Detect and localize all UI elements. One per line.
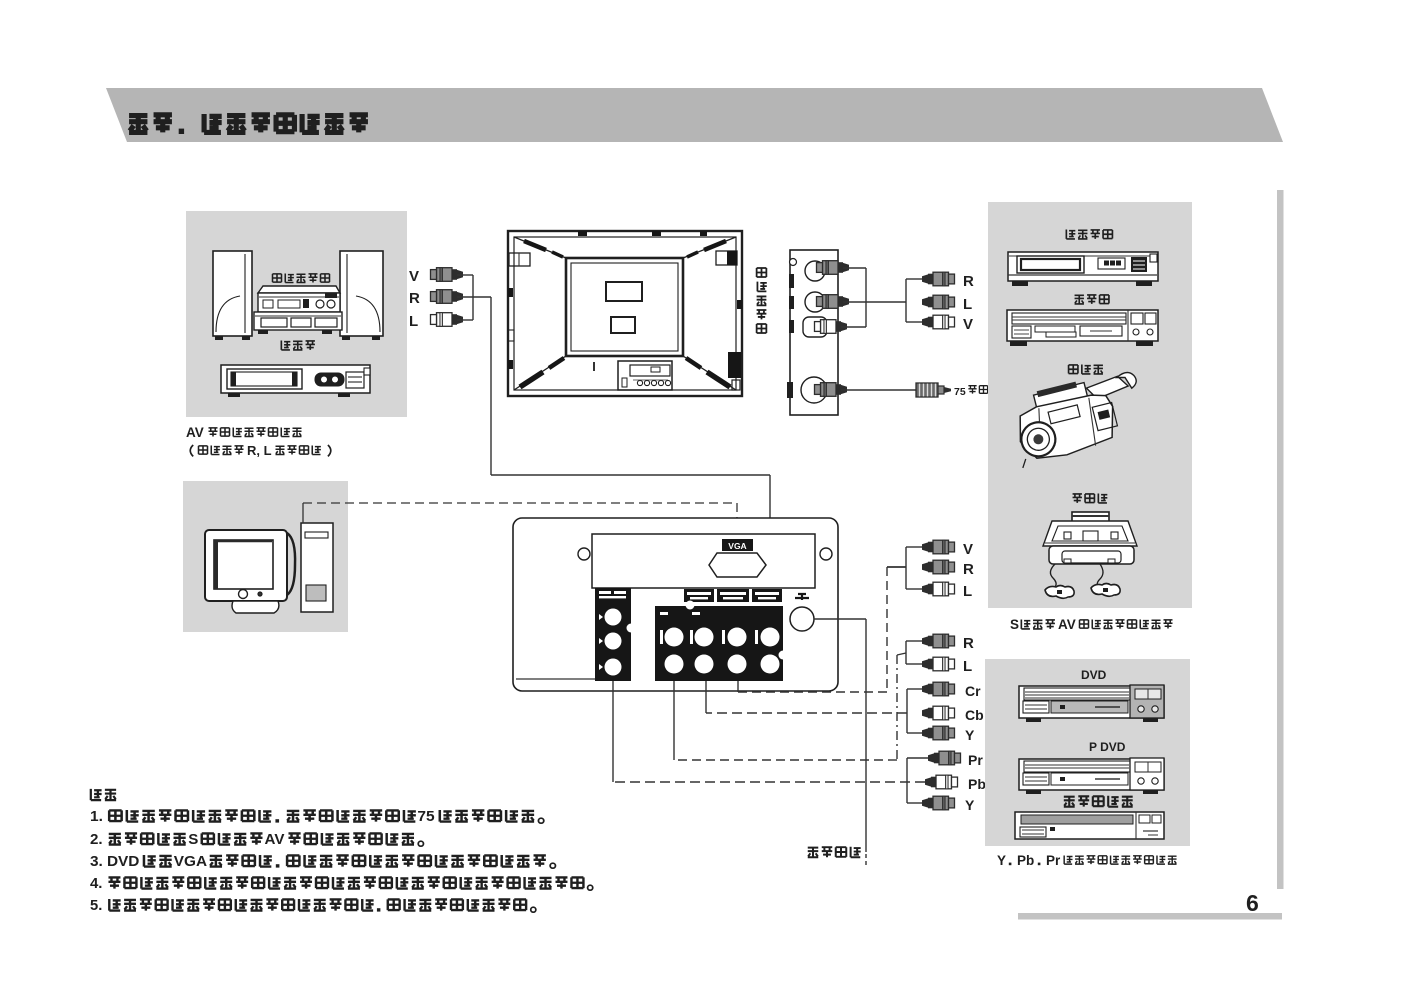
svg-text:Pb: Pb xyxy=(968,776,986,792)
svg-text:Pb: Pb xyxy=(1017,853,1034,868)
svg-text:L: L xyxy=(963,583,972,600)
svg-text:DVD: DVD xyxy=(107,853,140,869)
svg-text:Pr: Pr xyxy=(1046,853,1061,868)
svg-text:R, L: R, L xyxy=(247,443,272,458)
svg-text:P DVD: P DVD xyxy=(1089,740,1126,754)
svg-text:5.: 5. xyxy=(90,898,102,914)
svg-text:Y: Y xyxy=(997,853,1006,868)
svg-text:75: 75 xyxy=(417,808,434,824)
svg-text:Y: Y xyxy=(965,797,975,813)
svg-text:DVD: DVD xyxy=(1081,668,1107,682)
svg-text:R: R xyxy=(963,561,974,578)
svg-text:75: 75 xyxy=(954,386,966,398)
svg-text:3.: 3. xyxy=(90,853,103,869)
svg-text:R: R xyxy=(963,273,974,290)
svg-text:L: L xyxy=(409,313,418,330)
svg-text:V: V xyxy=(963,316,973,333)
svg-text:AV: AV xyxy=(1058,617,1076,632)
svg-text:L: L xyxy=(963,658,972,675)
svg-text:6: 6 xyxy=(1246,890,1259,916)
svg-text:2.: 2. xyxy=(90,832,103,848)
svg-text:L: L xyxy=(963,296,972,313)
svg-text:R: R xyxy=(963,635,974,652)
svg-text:Y: Y xyxy=(965,727,975,743)
svg-text:Cb: Cb xyxy=(965,707,984,723)
svg-text:R: R xyxy=(409,290,420,307)
svg-text:S: S xyxy=(1010,617,1019,632)
svg-text:VGA: VGA xyxy=(174,853,208,869)
svg-text:1.: 1. xyxy=(90,808,103,824)
svg-text:Pr: Pr xyxy=(968,752,983,768)
svg-text:S: S xyxy=(188,832,198,848)
svg-text:Cr: Cr xyxy=(965,683,981,699)
svg-text:AV: AV xyxy=(265,832,285,848)
svg-text:V: V xyxy=(963,541,973,558)
svg-text:V: V xyxy=(409,268,419,285)
svg-text:4.: 4. xyxy=(90,876,102,892)
svg-text:VGA: VGA xyxy=(728,541,746,551)
svg-text:AV: AV xyxy=(186,425,204,440)
